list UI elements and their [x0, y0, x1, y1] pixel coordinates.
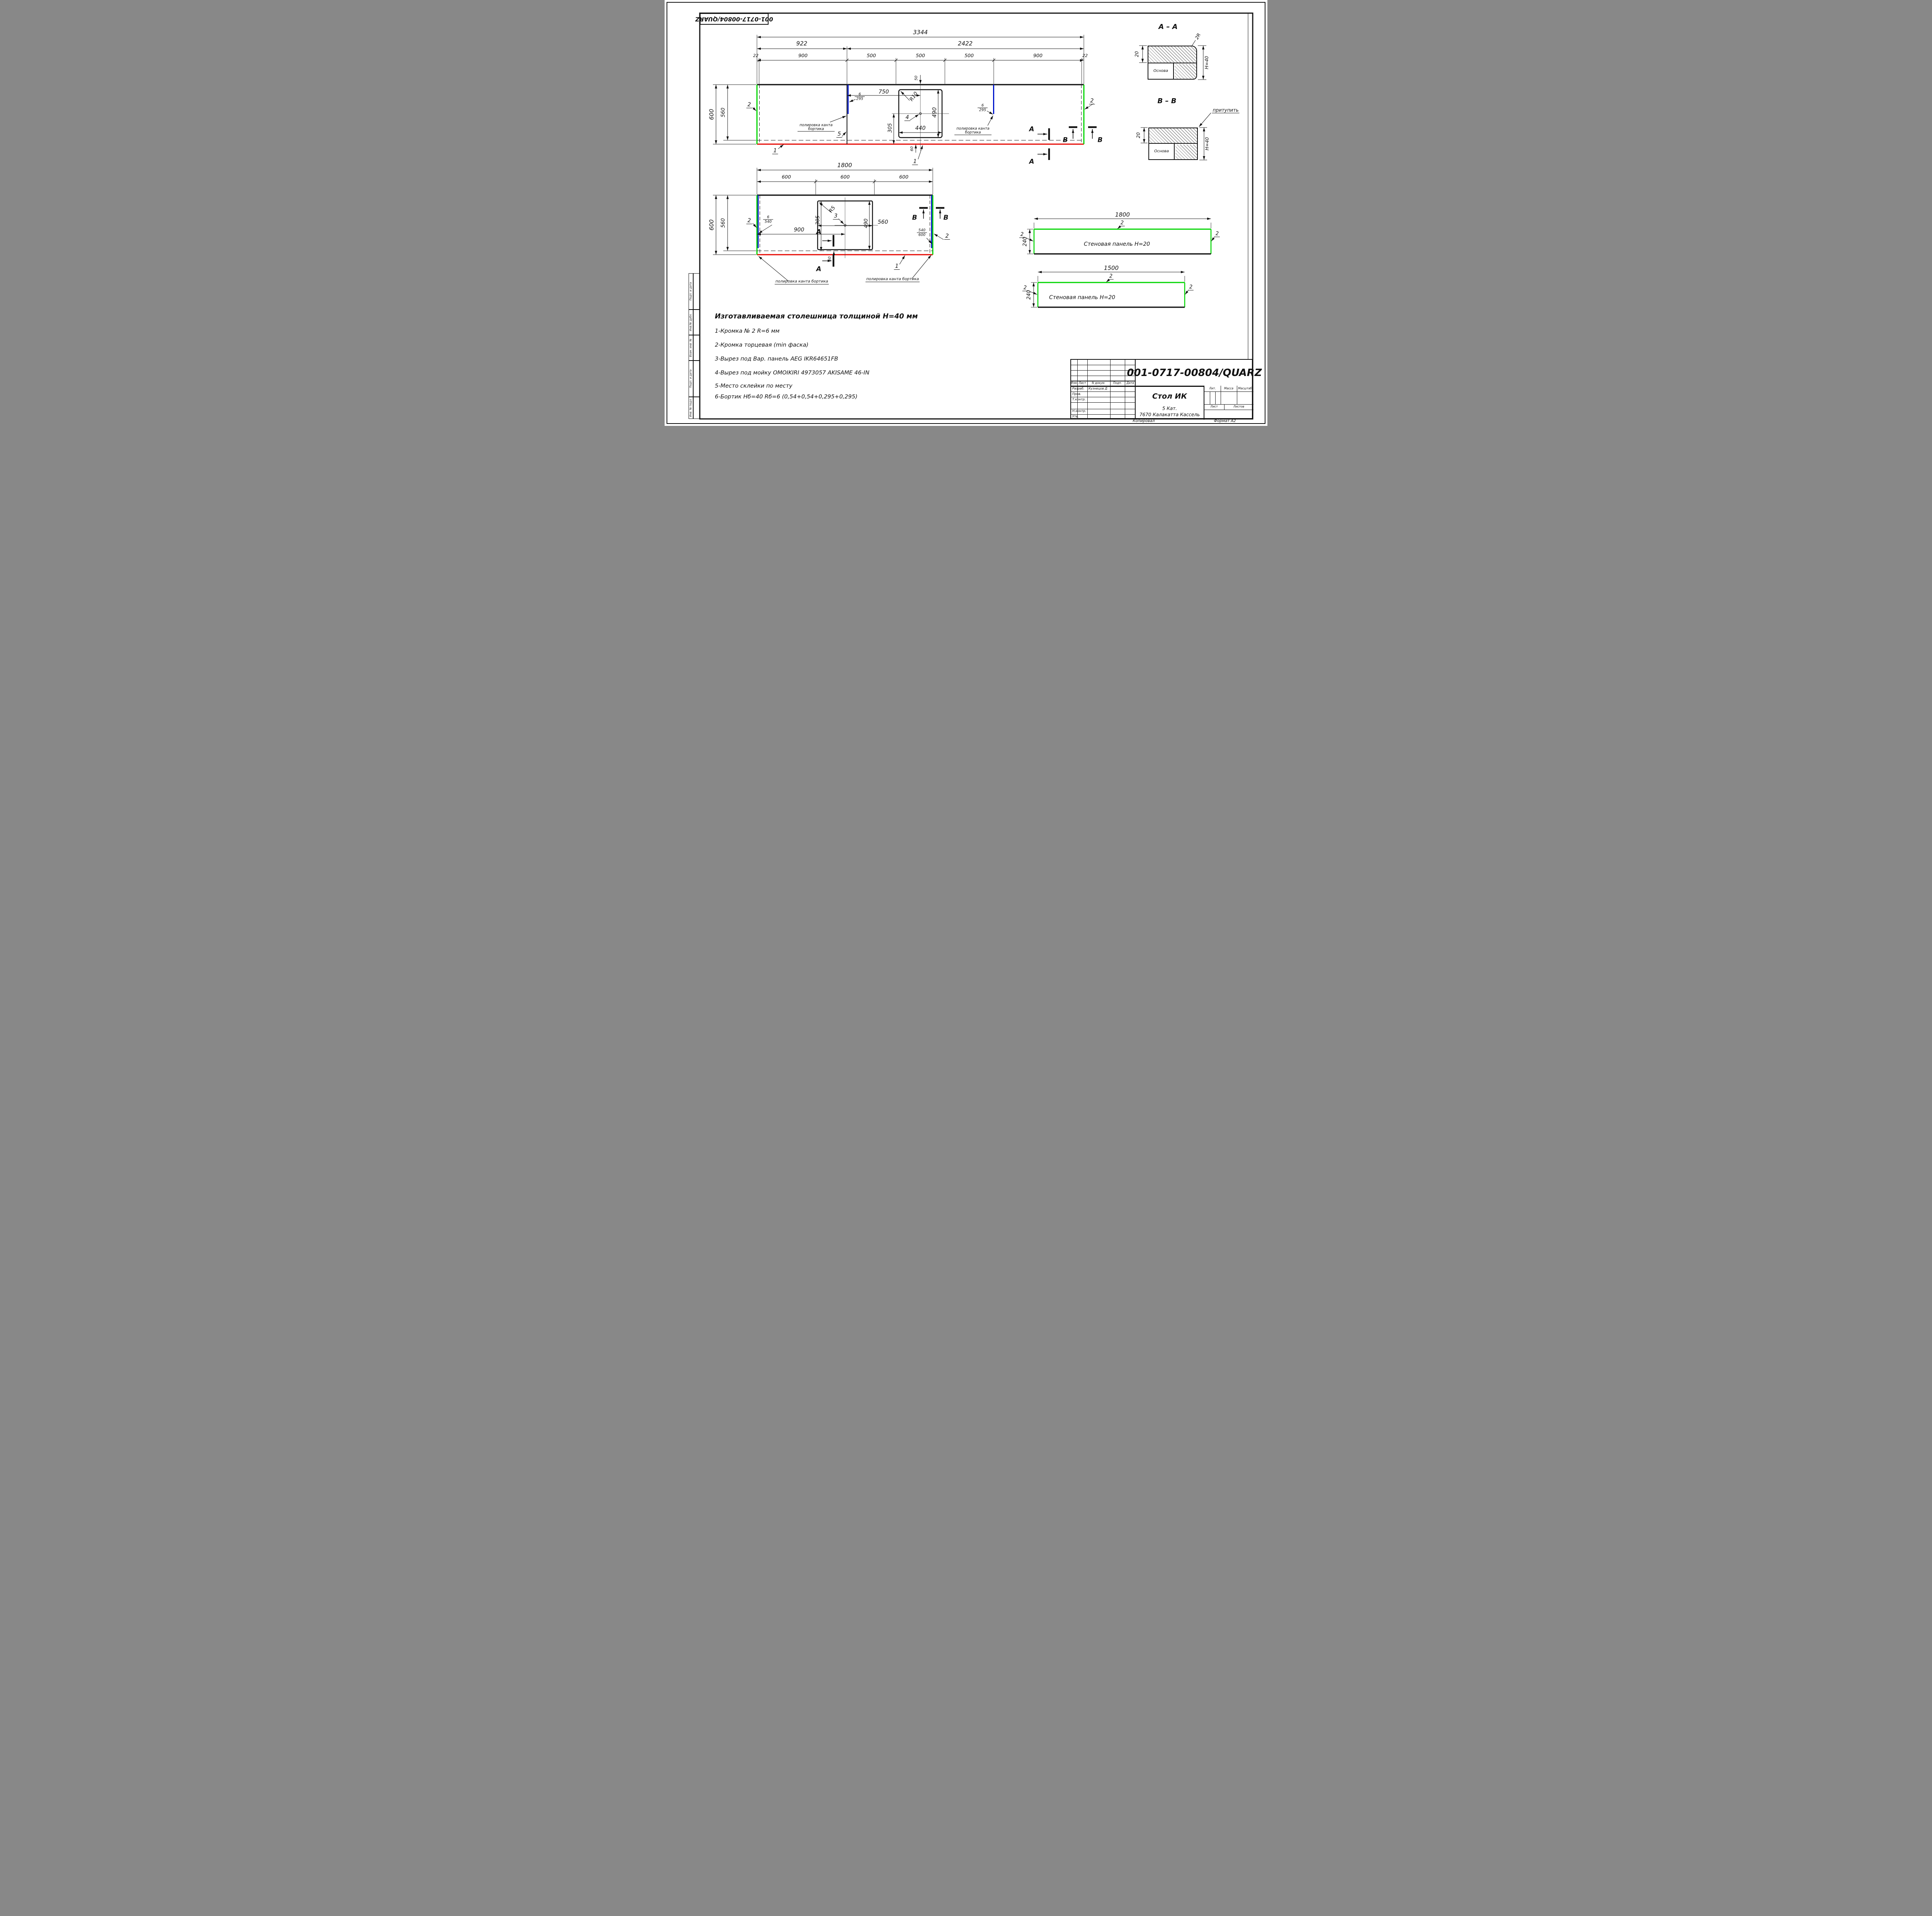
section-mark-a-mid-1: А	[816, 229, 821, 236]
callout-6-295-right: 6295	[978, 104, 988, 112]
dim-600-seg3: 600	[899, 175, 908, 180]
tb-col-date: Дата	[1126, 381, 1134, 385]
section-mark-a-mid-2: А	[816, 266, 821, 273]
tb-utv: Утв.	[1072, 415, 1079, 418]
dim-50-mid: 50	[828, 257, 832, 262]
tb-list2: Лист	[1210, 405, 1218, 408]
balloon-1-left: 1	[772, 148, 778, 154]
dim-305-mid: 305	[816, 216, 821, 225]
dim-500-c: 500	[964, 53, 974, 58]
dim-305: 305	[888, 123, 893, 133]
strip-label-inv-podl: Инв. № подл.	[690, 398, 692, 417]
dim-22-right: 22	[1082, 54, 1088, 58]
balloon-3: 3	[833, 213, 839, 220]
polish-label-mid-2: полировка канта бортика	[866, 277, 920, 282]
panel2-length: 1500	[1104, 265, 1119, 271]
note-1: 1-Кромка № 2 R=6 мм	[715, 328, 779, 334]
balloon-2-mid-right: 2	[944, 233, 950, 240]
tb-nkontr: Н.контр.	[1072, 410, 1086, 413]
panel2-height: 240	[1027, 290, 1032, 300]
panel1-balloon-right: 2	[1214, 231, 1220, 237]
dim-490-mid: 490	[864, 219, 869, 228]
drawing-sheet: 001-0717-00804/QUARZ 3344 922 2422 22 90…	[665, 0, 1267, 426]
tb-col-podp: Подп.	[1113, 381, 1122, 385]
dim-750: 750	[879, 89, 889, 95]
balloon-1-right: 1	[912, 159, 918, 165]
section-mark-b-top-2: В	[1098, 137, 1103, 144]
section-mark-a-top-2: А	[1029, 159, 1034, 165]
dim-500-b: 500	[916, 53, 925, 58]
callout-6-295-left: 6295	[855, 92, 865, 101]
tb-material-2: 7670 Калакатта Кассель	[1139, 412, 1200, 417]
dim-900-mid: 900	[794, 227, 804, 233]
sheet-copied: Копировал	[1133, 419, 1155, 423]
polish-label-top-2: полировка канта бортика	[954, 127, 992, 135]
dim-600-left: 600	[709, 109, 715, 120]
panel2-balloon-top: 2	[1108, 274, 1114, 280]
panel1-height: 240	[1023, 237, 1028, 247]
section-bb-h40: H=40	[1205, 137, 1209, 150]
dim-22-left: 22	[753, 54, 759, 58]
section-aa-20: 20	[1134, 51, 1139, 57]
tb-scale: Масштаб	[1238, 387, 1252, 390]
panel1-balloon-top: 2	[1119, 221, 1125, 226]
dim-60: 60	[910, 146, 914, 151]
sheet-format: Формат А2	[1214, 419, 1236, 423]
dim-922: 922	[796, 41, 808, 47]
panel1-label: Стеновая панель Н=20	[1084, 242, 1150, 247]
tb-razrab: Разраб.	[1072, 387, 1084, 390]
dim-1800-mid: 1800	[837, 163, 852, 168]
dim-600-left-mid: 600	[709, 220, 715, 231]
title-block: 001-0717-00804/QUARZ Изм. Лист N докум. …	[1070, 359, 1253, 419]
section-mark-b-mid-2: В	[944, 215, 949, 221]
note-2: 2-Кромка торцевая (min фаска)	[715, 342, 808, 348]
panel1-length: 1800	[1115, 212, 1130, 218]
dim-2422: 2422	[958, 41, 973, 47]
balloon-2-left: 2	[747, 102, 752, 108]
strip-label-podp1: Подп. и дата	[690, 282, 692, 301]
section-aa-h40: H=40	[1204, 56, 1209, 69]
tb-massa: Масса	[1224, 387, 1233, 390]
tb-razrab-value: Кузнецов Д	[1088, 387, 1107, 390]
section-bb-blunt: притупить	[1212, 108, 1239, 113]
dim-3344: 3344	[913, 30, 928, 36]
tb-col-ndoc: N докум.	[1092, 381, 1105, 385]
tb-tkontr: Т.контр.	[1072, 398, 1086, 401]
note-5: 5-Место склейки по месту	[715, 383, 793, 389]
callout-540-600: 540600	[917, 228, 927, 237]
polish-label-mid-1: полировка канта бортика	[775, 280, 829, 284]
notes-title: Изготавливаемая столешница толщиной Н=40…	[715, 313, 918, 320]
dim-560-left: 560	[721, 108, 726, 117]
balloon-4: 4	[905, 115, 910, 121]
balloon-2-mid-left: 2	[747, 218, 752, 224]
dim-600-seg1: 600	[782, 175, 791, 180]
dim-490: 490	[932, 107, 937, 118]
section-bb-body: Основа	[1148, 128, 1198, 160]
section-aa-body: Основа	[1148, 46, 1197, 80]
panel2-label: Стеновая панель Н=20	[1049, 295, 1115, 300]
tb-lit: Лит.	[1209, 387, 1216, 390]
corner-stamp-text: 001-0717-00804/QUARZ	[695, 16, 773, 22]
panel2-balloon-right: 2	[1188, 285, 1194, 291]
callout-6-540: 6540	[763, 215, 773, 224]
dim-900-right: 900	[1033, 53, 1043, 58]
note-3: 3-Вырез под Вар. панель AEG IKR64651FB	[715, 356, 838, 362]
tb-material-1: 5 Кат.	[1162, 406, 1177, 411]
tb-prov: Пров.	[1072, 393, 1081, 396]
strip-label-podp2: Подп. и дата	[690, 369, 692, 388]
tb-col-list: Лист	[1078, 381, 1086, 385]
section-mark-a-top-1: А	[1029, 126, 1034, 133]
dim-600-seg2: 600	[840, 175, 850, 180]
section-aa-base-label: Основа	[1153, 69, 1168, 73]
polish-label-top-1: полировка канта бортика	[798, 124, 835, 132]
section-aa-title: А – А	[1158, 24, 1177, 31]
dim-560-left-mid: 560	[721, 218, 726, 228]
strip-label-inv-dubl: Инв.№ дубл.	[690, 313, 692, 331]
section-bb-title: В – В	[1158, 98, 1177, 105]
section-mark-b-mid-1: В	[912, 215, 917, 221]
balloon-5: 5	[837, 131, 842, 138]
section-bb-20: 20	[1136, 132, 1141, 138]
tb-listov: Листов	[1233, 405, 1244, 408]
tb-part-name: Стол ИК	[1152, 393, 1187, 400]
dim-900-left: 900	[798, 53, 808, 58]
section-bb-base-label: Основа	[1154, 150, 1169, 153]
tb-doc-number: 001-0717-00804/QUARZ	[1127, 368, 1262, 378]
balloon-2-right: 2	[1089, 98, 1095, 104]
dim-440: 440	[915, 126, 926, 131]
note-6: 6-Бортик Нб=40 Rб=6 (0,54+0,54+0,295+0,2…	[715, 394, 857, 400]
tb-col-izm: Изм.	[1071, 381, 1078, 385]
dim-560-cutout: 560	[878, 220, 888, 225]
dim-500-a: 500	[867, 53, 876, 58]
section-mark-b-top-1: В	[1063, 137, 1068, 144]
note-4: 4-Вырез под мойку OMOIKIRI 4973057 AKISA…	[715, 370, 869, 376]
dim-50-top: 50	[915, 76, 918, 81]
balloon-1-mid: 1	[894, 264, 900, 270]
strip-label-vzam: Взам. инв. №	[690, 339, 692, 357]
